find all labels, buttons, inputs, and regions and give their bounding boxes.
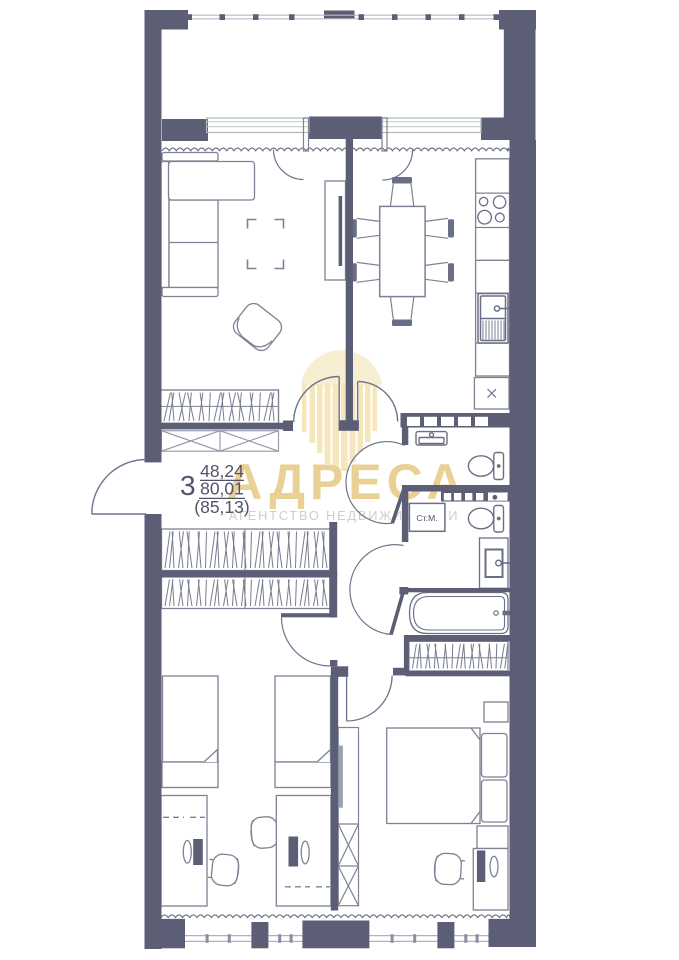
svg-text:АДРЕСА: АДРЕСА — [226, 454, 467, 510]
svg-text:Ст.М.: Ст.М. — [416, 513, 437, 523]
svg-text:(85,13): (85,13) — [194, 497, 249, 517]
svg-text:3: 3 — [180, 470, 196, 501]
svg-text:80,01: 80,01 — [200, 479, 244, 499]
